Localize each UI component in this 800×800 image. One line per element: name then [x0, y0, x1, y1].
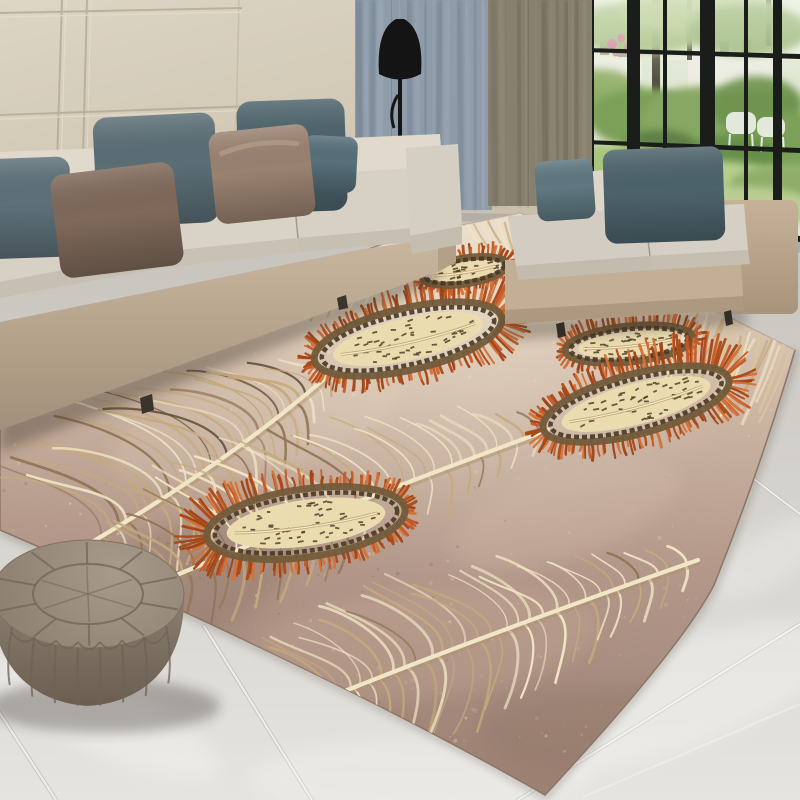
- bench-pillow-small: [534, 158, 596, 222]
- pillow-brown: [49, 161, 185, 279]
- pillow-taupe: [207, 123, 316, 225]
- living-room-photo: [0, 0, 800, 800]
- pouf-top: [0, 540, 184, 648]
- bench-pillow-large: [602, 146, 725, 244]
- scene-canvas: [0, 0, 800, 800]
